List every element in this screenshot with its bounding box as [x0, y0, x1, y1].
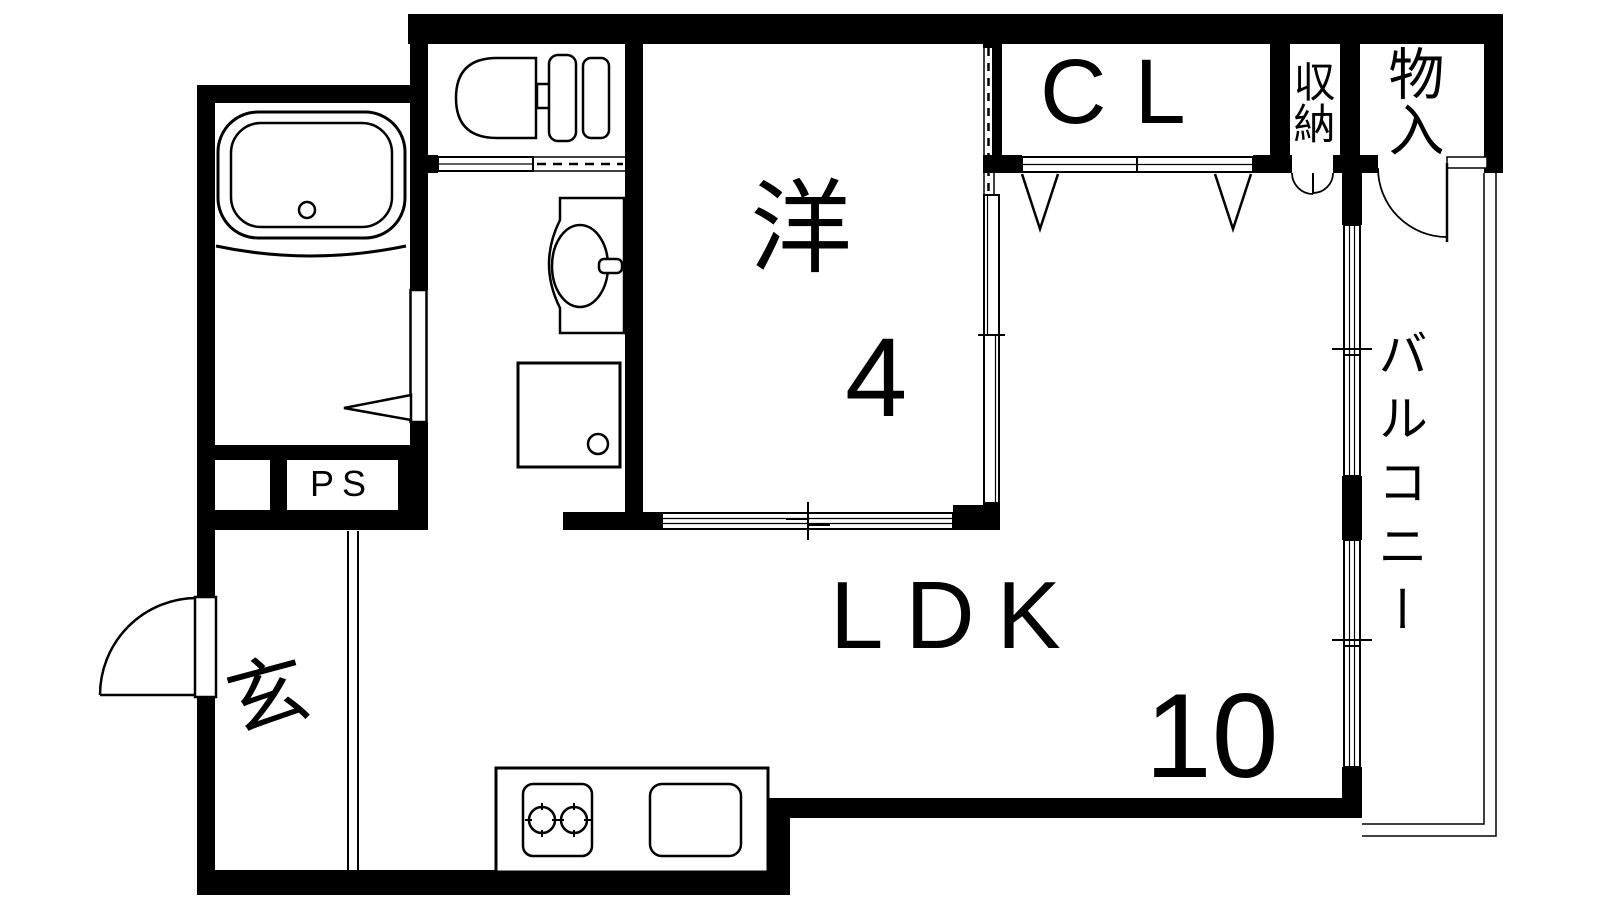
balcony-sliding-window-upper: [1332, 225, 1372, 476]
western-ldk-sliding-door-bottom: [662, 502, 953, 540]
label-ldk-size: 10: [1145, 676, 1278, 796]
label-ldk: LDK: [830, 568, 1083, 664]
label-closet2: 物入: [1384, 45, 1440, 157]
closet-bifold-doors-icon: [1022, 157, 1253, 229]
entry-door-arc: [100, 598, 197, 695]
label-closet: CL: [1040, 46, 1214, 138]
bathroom-folding-door-icon: [344, 290, 427, 422]
entry-door-leaf: [195, 597, 216, 697]
western-room-partition-dashed: [984, 44, 994, 198]
floor-plan: 洋 4 LDK 10 CL 収納 物入 バルコニー 玄 PS: [0, 0, 1600, 900]
washing-machine-pan-icon: [518, 363, 620, 467]
label-balcony: バルコニー: [1374, 328, 1424, 648]
fixtures-layer: [0, 0, 1600, 900]
bath-step-curve: [216, 246, 406, 256]
storage-hinged-door-icon: [1378, 157, 1487, 242]
label-western-room: 洋: [750, 178, 852, 280]
label-storage: 収納: [1290, 60, 1332, 144]
balcony-sliding-window-lower: [1332, 540, 1372, 767]
label-pipe-space: PS: [310, 466, 374, 502]
entry-door-icon: [100, 597, 216, 697]
toilet-icon: [456, 55, 609, 141]
bathtub: [218, 112, 405, 238]
washbasin-icon: [549, 198, 624, 333]
faucet: [599, 259, 622, 273]
western-ldk-sliding-door-right: [978, 195, 1005, 503]
kitchen-counter-icon: [496, 768, 768, 872]
storage-double-doors-icon: [1292, 173, 1333, 194]
toilet-sliding-door-icon: [438, 157, 625, 171]
label-western-room-size: 4: [845, 322, 907, 434]
genkan-step-line: [348, 531, 358, 870]
